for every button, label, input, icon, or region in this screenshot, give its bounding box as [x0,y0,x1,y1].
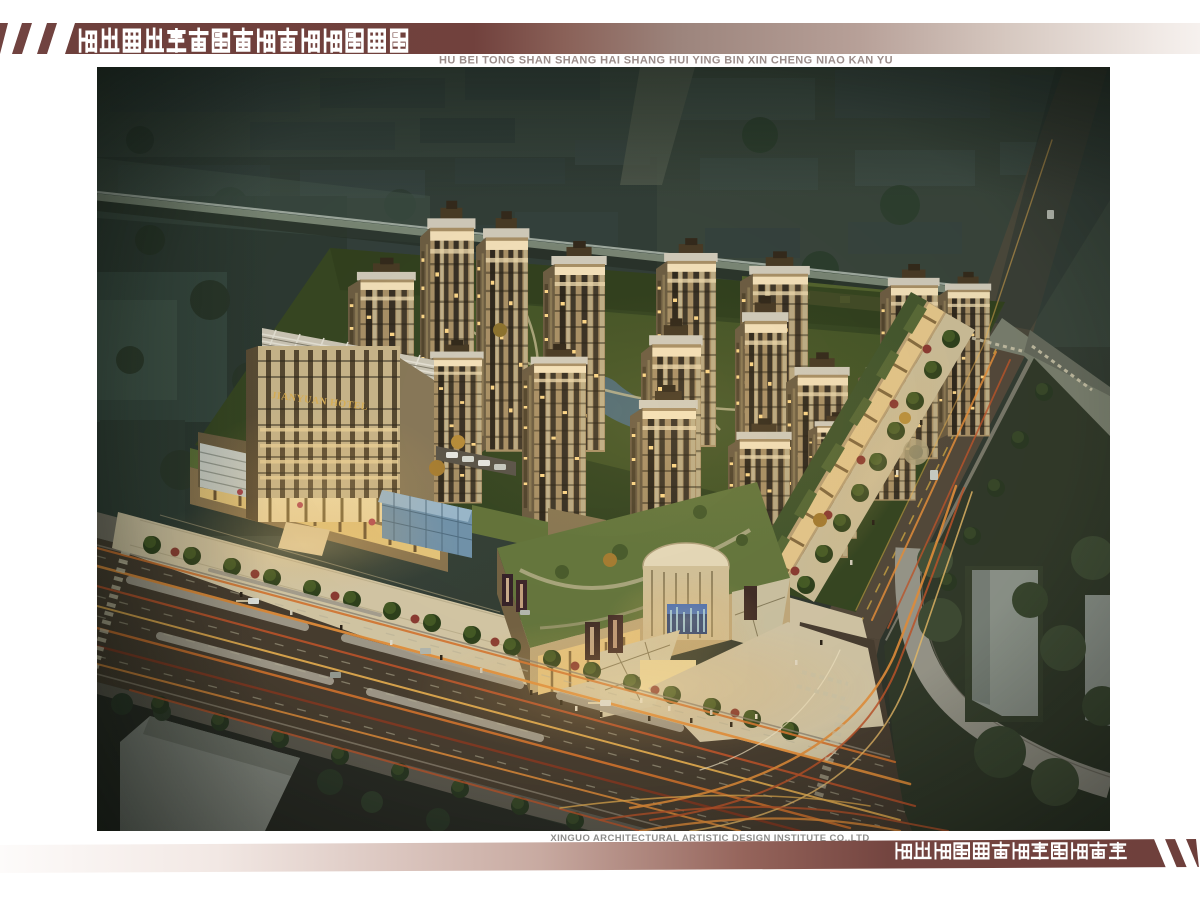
svg-text:HU BEI TONG SHAN SHANG HAI SHA: HU BEI TONG SHAN SHANG HAI SHANG HUI YIN… [439,55,893,67]
